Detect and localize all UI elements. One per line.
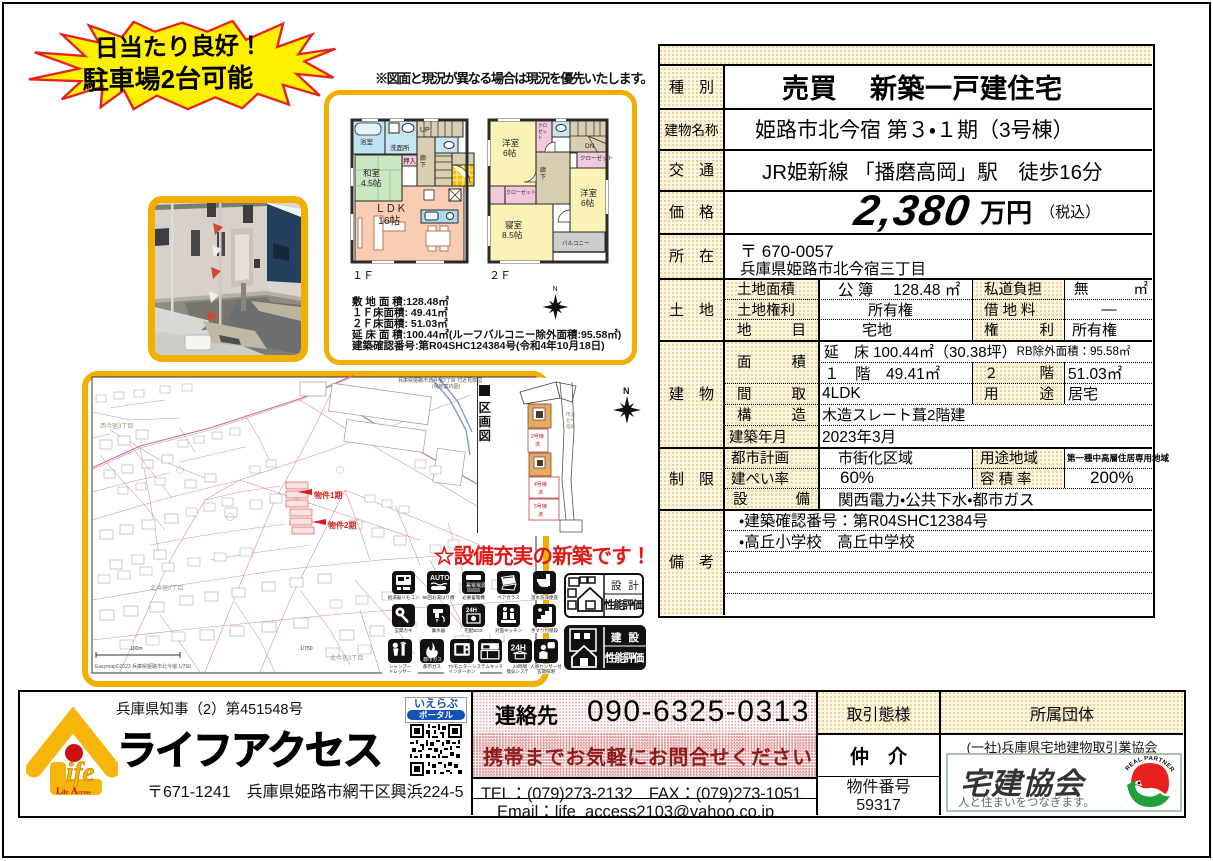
svg-text:1/750: 1/750	[300, 646, 313, 652]
svg-text:ゼッ: ゼッ	[538, 128, 547, 134]
svg-text:ife: ife	[62, 790, 69, 796]
svg-text:4.5帖: 4.5帖	[361, 178, 382, 188]
svg-text:都市ガス: 都市ガス	[423, 656, 442, 663]
svg-text:区: 区	[479, 401, 492, 415]
svg-text:AUTO: AUTO	[430, 575, 450, 582]
svg-text:建築確認番号:第R04SHC124384号(令和4年10月1: 建築確認番号:第R04SHC124384号(令和4年10月18日)	[351, 339, 605, 352]
svg-text:ccess: ccess	[78, 790, 91, 796]
svg-text:物件2期: 物件2期	[328, 520, 356, 530]
svg-text:和室: 和室	[363, 168, 381, 178]
svg-text:性能評価: 性能評価	[605, 651, 644, 665]
svg-text:市道: 市道	[566, 411, 575, 418]
svg-text:クローゼット: クローゼット	[506, 189, 536, 196]
svg-text:ＬＤＫ: ＬＤＫ	[375, 203, 407, 215]
svg-text:2号棟: 2号棟	[531, 433, 544, 440]
svg-text:１Ｆ: １Ｆ	[352, 270, 374, 282]
svg-text:UP: UP	[420, 127, 430, 134]
svg-text:洋室: 洋室	[502, 138, 520, 148]
svg-text:画: 画	[479, 415, 492, 429]
svg-text:北今宿2丁目: 北今宿2丁目	[150, 584, 183, 592]
svg-text:物件1期: 物件1期	[314, 490, 342, 500]
svg-text:8.5帖: 8.5帖	[502, 230, 523, 240]
svg-text:バルコニー: バルコニー	[562, 240, 589, 247]
svg-text:洋室: 洋室	[580, 188, 598, 198]
svg-text:クローゼット: クローゼット	[580, 154, 613, 162]
svg-text:図: 図	[479, 429, 492, 443]
svg-text:北今宿3丁目: 北今宿3丁目	[330, 654, 363, 662]
svg-text:6帖: 6帖	[581, 198, 595, 208]
svg-text:5号棟: 5号棟	[534, 503, 547, 510]
svg-text:宿線: 宿線	[566, 423, 575, 430]
svg-text:廊: 廊	[420, 154, 426, 162]
svg-text:寝室: 寝室	[505, 220, 523, 230]
svg-text:浴室: 浴室	[360, 137, 374, 146]
svg-text:A: A	[71, 787, 78, 797]
svg-text:建 設: 建 設	[610, 631, 641, 644]
svg-text:北今: 北今	[566, 417, 575, 424]
svg-text:済: 済	[535, 441, 540, 448]
svg-text:16帖: 16帖	[378, 214, 401, 227]
svg-text:(現地案内図): (現地案内図)	[432, 383, 461, 390]
svg-text:２Ｆ: ２Ｆ	[489, 270, 511, 282]
svg-text:蓄電電源: 蓄電電源	[466, 582, 485, 589]
svg-text:ト: ト	[538, 135, 543, 140]
svg-text:N: N	[553, 286, 558, 293]
svg-text:24H: 24H	[511, 642, 526, 652]
svg-text:性能評価: 性能評価	[604, 598, 642, 612]
svg-text:西今宿3丁目: 西今宿3丁目	[100, 422, 133, 430]
svg-text:洗面所: 洗面所	[390, 143, 410, 152]
svg-text:ife: ife	[66, 757, 94, 787]
svg-text:日当たり良好！: 日当たり良好！	[95, 33, 263, 63]
svg-text:下: 下	[420, 162, 426, 169]
svg-text:済: 済	[538, 489, 543, 496]
svg-text:設 計: 設 計	[611, 580, 641, 592]
svg-text:駐車場2台可能: 駐車場2台可能	[82, 63, 253, 96]
svg-text:兵庫県姫路市北今宿3丁目 付近見取図: 兵庫県姫路市北今宿3丁目 付近見取図	[398, 377, 482, 384]
svg-text:下: 下	[540, 174, 546, 181]
svg-text:DN: DN	[585, 143, 595, 150]
svg-text:N: N	[623, 386, 630, 396]
svg-text:24H: 24H	[466, 608, 477, 614]
svg-text:6帖: 6帖	[503, 148, 517, 158]
svg-text:4号棟: 4号棟	[534, 481, 547, 488]
svg-text:Easymap©2023 兵庫県姫路市北今宿 1/750: Easymap©2023 兵庫県姫路市北今宿 1/750	[95, 663, 191, 670]
svg-text:廊: 廊	[540, 166, 546, 174]
svg-text:済: 済	[538, 511, 543, 518]
svg-text:押入: 押入	[403, 156, 417, 165]
svg-text:100m: 100m	[130, 646, 143, 652]
